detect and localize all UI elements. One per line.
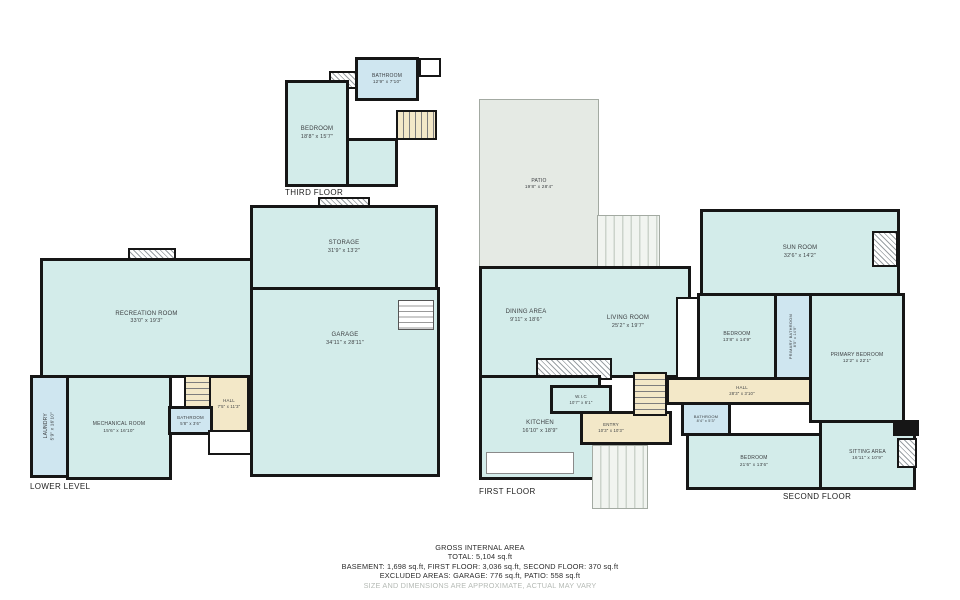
closet-third — [419, 58, 441, 77]
room-dims: 7'5" x 11'3" — [218, 404, 241, 409]
room-label: MECHANICAL ROOM 15'6" x 16'10" — [93, 421, 146, 434]
floor-label-third: THIRD FLOOR — [285, 188, 343, 197]
room-label: BATHROOM 5'8" x 3'6" — [177, 415, 204, 426]
room-hall-second: HALL 28'3" x 3'10" — [666, 377, 818, 405]
room-dims: 12'2" x 22'1" — [831, 358, 884, 364]
room-dims: 32'6" x 14'2" — [783, 253, 818, 260]
room-mechanical: MECHANICAL ROOM 15'6" x 16'10" — [66, 375, 172, 480]
room-sun-room: SUN ROOM 32'6" x 14'2" — [700, 209, 900, 296]
excluded-areas-line: EXCLUDED AREAS: GARAGE: 776 sq.ft, PATIO… — [0, 571, 960, 580]
stairs-first-floor — [633, 372, 667, 416]
room-dims: 19'8" x 28'4" — [525, 184, 553, 190]
room-label: W.I.C 10'7" x 6'1" — [569, 394, 592, 405]
room-label: BEDROOM 18'8" x 15'7" — [301, 126, 333, 141]
room-dims: 16'11" x 10'9" — [849, 455, 886, 461]
floor-label-lower: LOWER LEVEL — [30, 482, 90, 491]
room-label: RECREATION ROOM 33'0" x 19'3" — [115, 311, 177, 326]
room-name: BEDROOM — [740, 455, 768, 462]
room-label: BATHROOM 8'4" x 5'3" — [694, 414, 718, 424]
room-name: LIVING ROOM — [574, 315, 682, 323]
room-entry: ENTRY 10'3" x 10'3" — [580, 411, 672, 445]
room-dims: 12'9" x 7'10" — [372, 79, 402, 85]
room-name: MECHANICAL ROOM — [93, 421, 146, 428]
room-bathroom-second: BATHROOM 8'4" x 5'3" — [681, 402, 731, 436]
area-summary: GROSS INTERNAL AREA TOTAL: 5,104 sq.ft B… — [0, 543, 960, 590]
room-dims: 8'5" x 14'9" — [793, 314, 798, 359]
room-bathroom-lower: BATHROOM 5'8" x 3'6" — [168, 406, 213, 435]
room-label: BEDROOM 13'8" x 14'9" — [723, 331, 751, 344]
room-bedroom-third-extension — [346, 138, 398, 187]
room-label: LAUNDRY 5'9" x 16'10" — [43, 412, 56, 440]
room-dims: 10'3" x 10'3" — [598, 428, 624, 433]
room-dims: 31'9" x 13'2" — [328, 248, 360, 255]
room-label: KITCHEN 16'10" x 18'9" — [522, 420, 557, 435]
stairs-garage — [398, 300, 434, 330]
stairs-third-floor — [396, 110, 437, 140]
room-dims: 25'2" x 19'7" — [574, 323, 682, 330]
room-bedroom-back: BEDROOM 21'6" x 13'6" — [686, 433, 822, 490]
room-primary-bathroom: PRIMARY BATHROOM 8'5" x 14'9" — [774, 293, 812, 381]
room-dims: 8'4" x 5'3" — [694, 419, 718, 424]
room-bathroom-third: BATHROOM 12'9" x 7'10" — [355, 57, 419, 101]
room-name: STORAGE — [328, 240, 360, 248]
room-label: ENTRY 10'3" x 10'3" — [598, 422, 624, 433]
room-recreation: RECREATION ROOM 33'0" x 19'3" — [40, 258, 253, 378]
deck-steps-upper — [597, 215, 660, 269]
room-label: SITTING AREA 16'11" x 10'9" — [849, 449, 886, 462]
room-hall-lower: HALL 7'5" x 11'3" — [208, 375, 250, 433]
room-name: BEDROOM — [301, 126, 333, 134]
room-label: HALL 28'3" x 3'10" — [729, 385, 755, 396]
room-dims: 28'3" x 3'10" — [729, 391, 755, 396]
floor-label-second: SECOND FLOOR — [783, 492, 851, 501]
room-dims: 18'8" x 15'7" — [301, 134, 333, 141]
room-name: DINING AREA — [490, 309, 562, 317]
room-label: HALL 7'5" x 11'3" — [218, 398, 241, 409]
fireplace-hatch-sunroom — [872, 231, 898, 267]
room-name: RECREATION ROOM — [115, 311, 177, 319]
room-dims: 15'6" x 16'10" — [93, 428, 146, 434]
room-wic: W.I.C 10'7" x 6'1" — [550, 385, 612, 414]
gross-area-heading: GROSS INTERNAL AREA — [0, 543, 960, 552]
floor-areas-line: BASEMENT: 1,698 sq.ft, FIRST FLOOR: 3,03… — [0, 562, 960, 571]
total-area: TOTAL: 5,104 sq.ft — [0, 552, 960, 561]
hall-closet-lower — [208, 430, 252, 455]
room-dims: 34'11" x 28'11" — [326, 340, 364, 347]
room-dims: 9'11" x 18'6" — [490, 317, 562, 324]
room-name: BATHROOM — [177, 415, 204, 421]
room-label: SUN ROOM 32'6" x 14'2" — [783, 245, 818, 260]
room-name: SUN ROOM — [783, 245, 818, 253]
room-label: PATIO 19'8" x 28'4" — [525, 178, 553, 191]
room-dims: 5'9" x 16'10" — [50, 412, 56, 440]
room-label-dining: DINING AREA 9'11" x 18'6" — [490, 309, 562, 324]
room-label: BATHROOM 12'9" x 7'10" — [372, 73, 402, 86]
fireplace-hatch-sitting — [897, 438, 917, 468]
room-name: GARAGE — [326, 332, 364, 340]
kitchen-counter — [486, 452, 574, 474]
room-dims: 5'8" x 3'6" — [177, 421, 204, 426]
room-label: STORAGE 31'9" x 13'2" — [328, 240, 360, 255]
room-primary-bedroom: PRIMARY BEDROOM 12'2" x 22'1" — [809, 293, 905, 423]
room-laundry: LAUNDRY 5'9" x 16'10" — [30, 375, 69, 478]
room-name: KITCHEN — [522, 420, 557, 428]
fireplace-block-sitting — [893, 420, 919, 436]
room-dims: 21'6" x 13'6" — [740, 462, 768, 468]
room-label-living: LIVING ROOM 25'2" x 19'7" — [574, 315, 682, 330]
room-label: PRIMARY BATHROOM 8'5" x 14'9" — [788, 314, 798, 359]
room-label: PRIMARY BEDROOM 12'2" x 22'1" — [831, 352, 884, 365]
floor-label-first: FIRST FLOOR — [479, 487, 536, 496]
disclaimer: SIZE AND DIMENSIONS ARE APPROXIMATE, ACT… — [0, 581, 960, 590]
floor-plan-canvas: BEDROOM 18'8" x 15'7" BATHROOM 12'9" x 7… — [0, 0, 960, 600]
room-storage: STORAGE 31'9" x 13'2" — [250, 205, 438, 290]
room-label: BEDROOM 21'6" x 13'6" — [740, 455, 768, 468]
room-label: GARAGE 34'11" x 28'11" — [326, 332, 364, 347]
room-dims: 13'8" x 14'9" — [723, 337, 751, 343]
deck-steps-lower — [592, 445, 648, 509]
room-bedroom-third: BEDROOM 18'8" x 15'7" — [285, 80, 349, 187]
room-bedroom-front: BEDROOM 13'8" x 14'9" — [697, 293, 777, 381]
room-dims: 10'7" x 6'1" — [569, 400, 592, 405]
room-dims: 16'10" x 18'9" — [522, 428, 557, 435]
room-patio: PATIO 19'8" x 28'4" — [479, 99, 599, 269]
room-dims: 33'0" x 19'3" — [115, 318, 177, 325]
